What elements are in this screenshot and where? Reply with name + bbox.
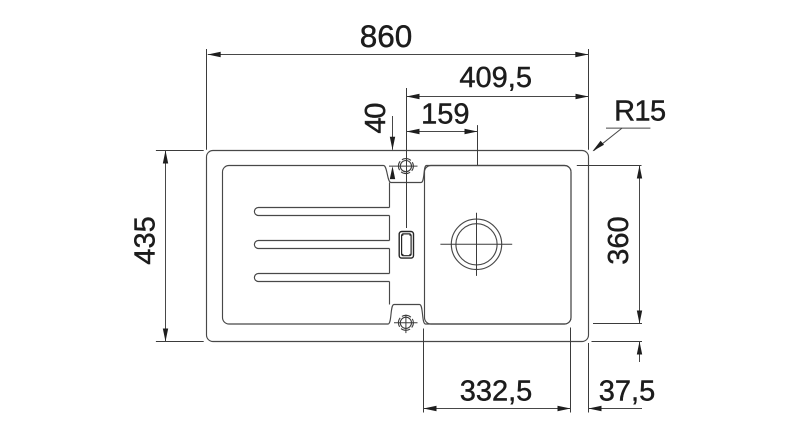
svg-text:40: 40 bbox=[360, 104, 392, 134]
svg-text:409,5: 409,5 bbox=[459, 62, 532, 94]
svg-text:360: 360 bbox=[603, 216, 635, 264]
svg-text:860: 860 bbox=[360, 18, 413, 54]
svg-text:37,5: 37,5 bbox=[599, 376, 655, 408]
svg-text:159: 159 bbox=[421, 99, 469, 131]
svg-text:R15: R15 bbox=[614, 96, 665, 128]
svg-text:435: 435 bbox=[130, 216, 162, 264]
svg-text:332,5: 332,5 bbox=[460, 376, 533, 408]
